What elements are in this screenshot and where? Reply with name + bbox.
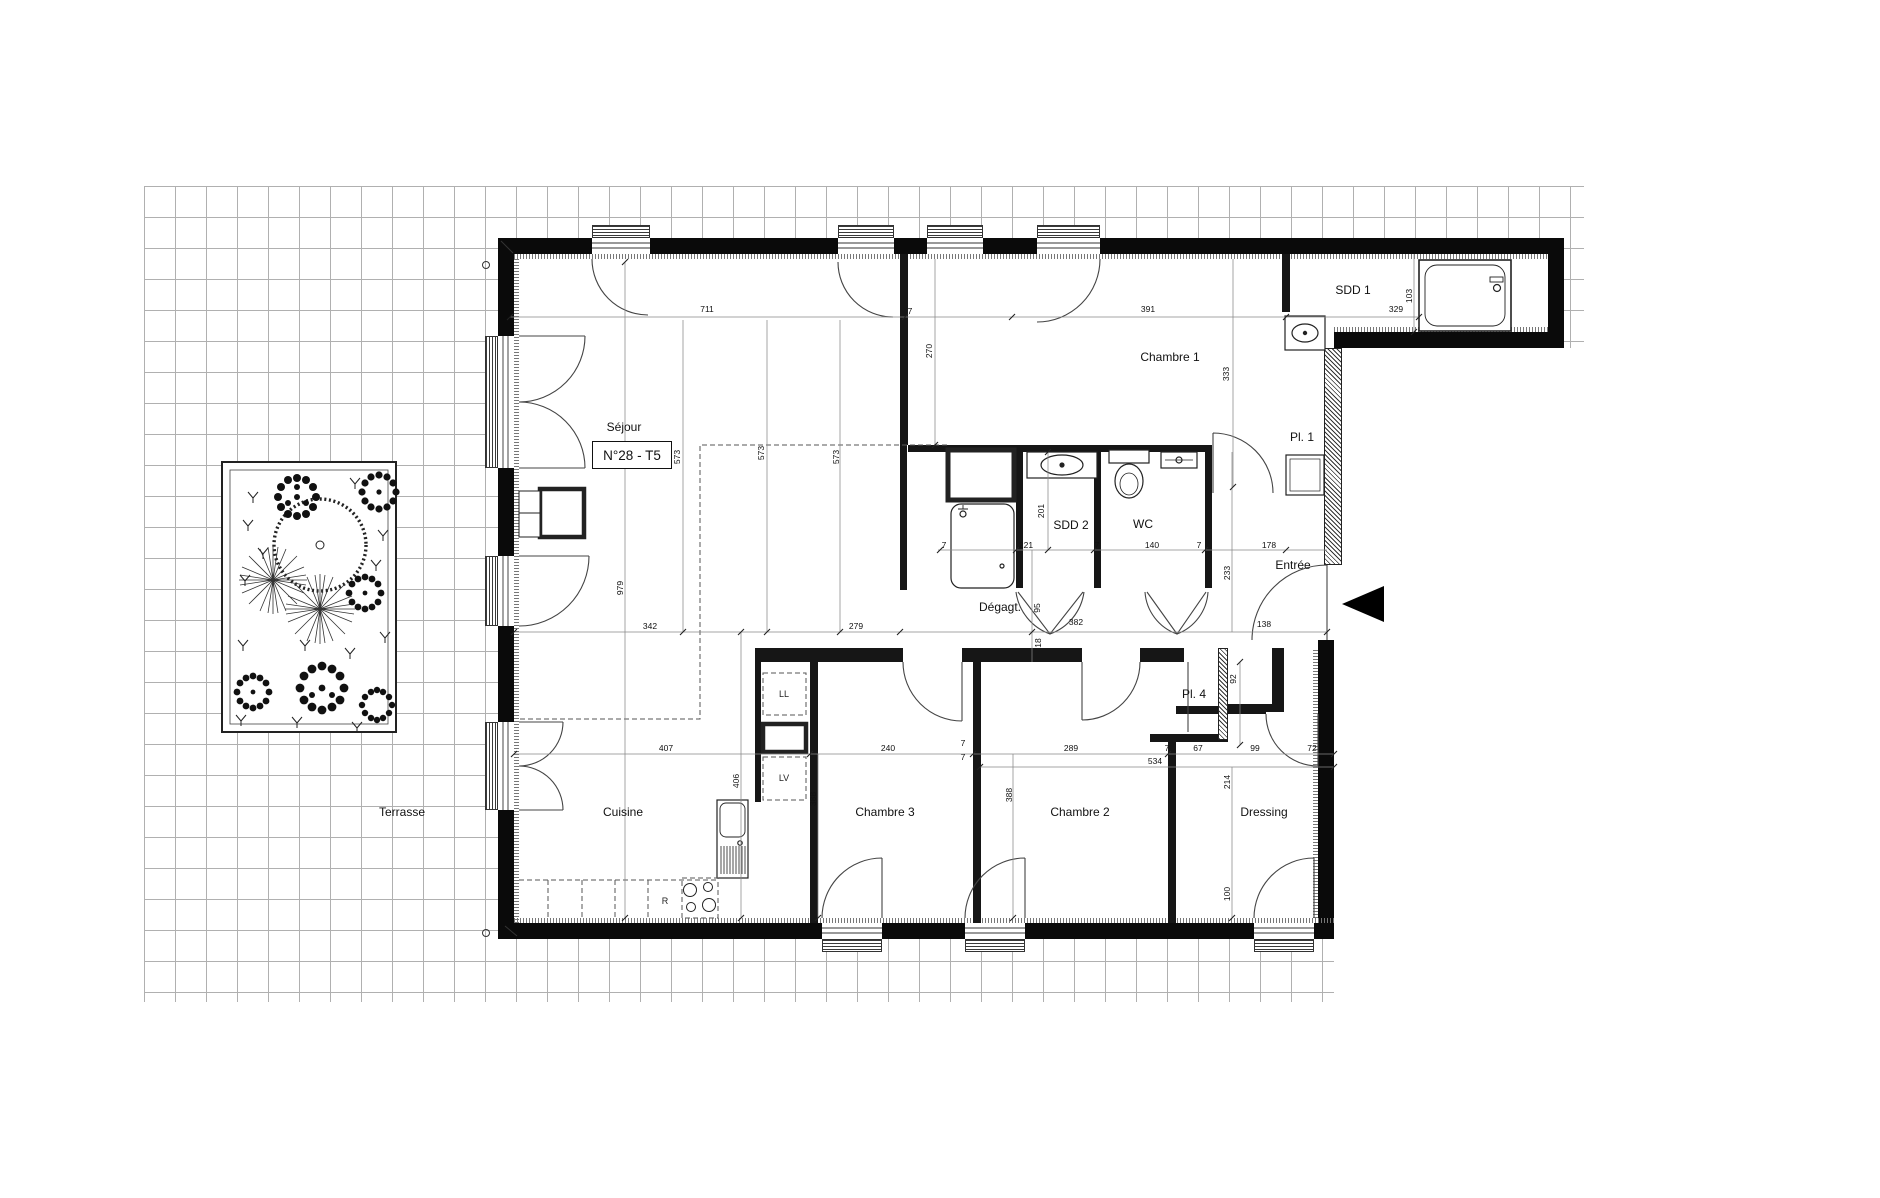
insulation-top xyxy=(514,254,1548,259)
dim-label: 240 xyxy=(881,744,895,753)
room-label-degagt: Dégagt. xyxy=(979,600,1021,614)
room-label-dressing: Dressing xyxy=(1240,805,1287,819)
dim-label: 221 xyxy=(1019,541,1033,550)
right-blank-area xyxy=(1334,348,1584,1002)
window-bottom-1 xyxy=(822,923,882,939)
dim-label: 138 xyxy=(1257,620,1271,629)
dim-label: 178 xyxy=(1262,541,1276,550)
room-label-chambre2: Chambre 2 xyxy=(1050,805,1109,819)
dim-label: 382 xyxy=(1069,618,1083,627)
dim-label: 7 xyxy=(961,753,966,762)
room-label-entree: Entrée xyxy=(1275,558,1310,572)
dim-label: 214 xyxy=(1223,775,1232,789)
dim-label: 7 xyxy=(942,541,947,550)
dim-label: 573 xyxy=(757,446,766,460)
partition-bath-block-top xyxy=(908,445,1212,452)
shutter-icon xyxy=(1254,939,1314,952)
dim-label: 95 xyxy=(1033,603,1042,612)
dim-label: 72 xyxy=(1307,744,1316,753)
dim-label: 140 xyxy=(1145,541,1159,550)
insulation-wing xyxy=(1334,327,1548,332)
dim-label: 270 xyxy=(925,344,934,358)
wall-wing-bottom xyxy=(1334,332,1548,348)
partition-duct-left xyxy=(900,445,907,590)
window-left-2 xyxy=(498,556,514,626)
dim-label: 103 xyxy=(1405,289,1414,303)
partition-chambre3-chambre2 xyxy=(973,662,981,923)
dim-label: 391 xyxy=(1141,305,1155,314)
room-label-chambre3: Chambre 3 xyxy=(855,805,914,819)
dim-label: 100 xyxy=(1223,887,1232,901)
dim-label: 573 xyxy=(673,450,682,464)
wall-top xyxy=(498,238,1564,254)
appliance-label-washer: LL xyxy=(779,689,789,699)
dim-label: 7 xyxy=(1095,541,1100,550)
partition-corridor-3 xyxy=(1140,648,1184,662)
window-top-3 xyxy=(927,238,983,254)
room-label-sdd1: SDD 1 xyxy=(1335,283,1370,297)
window-top-4 xyxy=(1037,238,1100,254)
window-left-3 xyxy=(498,722,514,810)
dim-label: 7 xyxy=(1197,541,1202,550)
dim-label: 388 xyxy=(1005,788,1014,802)
planter-base xyxy=(222,462,396,732)
dim-label: 329 xyxy=(1389,305,1403,314)
hatched-wall-entrance xyxy=(1324,348,1342,565)
shutter-icon xyxy=(485,336,498,468)
window-top-1 xyxy=(592,238,650,254)
partition-corridor-2 xyxy=(962,648,1082,662)
partition-chambre2-dressing xyxy=(1168,742,1176,923)
dim-label: 289 xyxy=(1064,744,1078,753)
insulation-right xyxy=(1313,648,1318,918)
room-label-pl1: Pl. 1 xyxy=(1290,430,1314,444)
partition-wc-right xyxy=(1205,452,1212,588)
partition-corridor-1 xyxy=(755,648,903,662)
window-top-2 xyxy=(838,238,894,254)
dim-label: 201 xyxy=(1037,504,1046,518)
shutter-icon xyxy=(485,722,498,810)
room-label-wc: WC xyxy=(1133,517,1153,531)
window-left-1 xyxy=(498,336,514,468)
wall-right xyxy=(1318,640,1334,939)
shutter-icon xyxy=(592,225,650,238)
dim-label: 388 xyxy=(809,792,818,806)
appliance-label-fridge: R xyxy=(662,896,669,906)
room-label-cuisine: Cuisine xyxy=(603,805,643,819)
window-bottom-2 xyxy=(965,923,1025,939)
dim-label: 573 xyxy=(832,450,841,464)
partition-kitchen-niche xyxy=(755,662,761,802)
insulation-left xyxy=(514,259,519,923)
dim-label: 99 xyxy=(1250,744,1259,753)
room-label-sejour: Séjour xyxy=(607,420,642,434)
dim-label: 18 xyxy=(1034,638,1043,647)
dim-label: 342 xyxy=(643,622,657,631)
room-label-terrasse: Terrasse xyxy=(379,805,425,819)
shutter-icon xyxy=(485,556,498,626)
shutter-icon xyxy=(838,225,894,238)
dim-label: 233 xyxy=(1223,566,1232,580)
unit-badge: N°28 - T5 xyxy=(592,441,672,469)
dim-label: 92 xyxy=(1229,674,1238,683)
dim-label: 979 xyxy=(616,581,625,595)
dim-label: 407 xyxy=(659,744,673,753)
room-label-sdd2: SDD 2 xyxy=(1053,518,1088,532)
dim-label: 534 xyxy=(1148,757,1162,766)
dim-label: 711 xyxy=(700,305,714,314)
wall-bottom xyxy=(498,923,1334,939)
partition-sejour-chambre1 xyxy=(900,254,908,445)
partition-entree-closet-bottom xyxy=(1228,704,1284,712)
partition-entree-closet-right xyxy=(1272,648,1284,712)
shutter-icon xyxy=(1037,225,1100,238)
hatched-wall-pl4 xyxy=(1218,648,1228,740)
dim-label: 7 xyxy=(961,739,966,748)
room-label-chambre1: Chambre 1 xyxy=(1140,350,1199,364)
dim-label: 7 xyxy=(1165,744,1170,753)
shutter-icon xyxy=(822,939,882,952)
partition-pl4-bottom xyxy=(1150,734,1228,742)
dim-label: 7 xyxy=(908,307,913,316)
room-label-pl4: Pl. 4 xyxy=(1182,687,1206,701)
dim-label: 333 xyxy=(1222,367,1231,381)
shutter-icon xyxy=(965,939,1025,952)
dim-label: 406 xyxy=(732,774,741,788)
partition-sdd2-wc xyxy=(1094,452,1101,588)
wall-wing-right xyxy=(1548,238,1564,348)
appliance-label-dishwasher: LV xyxy=(779,773,789,783)
floor-plan: Séjour N°28 - T5 Chambre 1 SDD 1 Pl. 1 S… xyxy=(0,0,1880,1198)
partition-sdd2-left xyxy=(1016,452,1023,588)
partition-chambre1-sdd1 xyxy=(1282,254,1290,312)
shutter-icon xyxy=(927,225,983,238)
window-bottom-3 xyxy=(1254,923,1314,939)
insulation-bottom xyxy=(514,918,1334,923)
dim-label: 279 xyxy=(849,622,863,631)
dim-label: 67 xyxy=(1193,744,1202,753)
